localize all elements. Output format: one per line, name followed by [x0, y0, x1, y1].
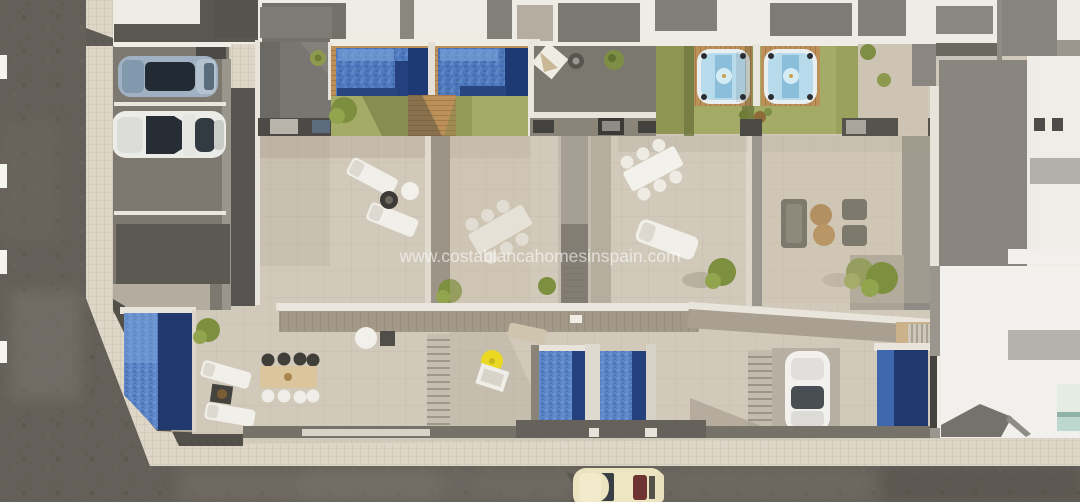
svg-text:www.costablancahomesinspain.co: www.costablancahomesinspain.com: [398, 246, 680, 266]
